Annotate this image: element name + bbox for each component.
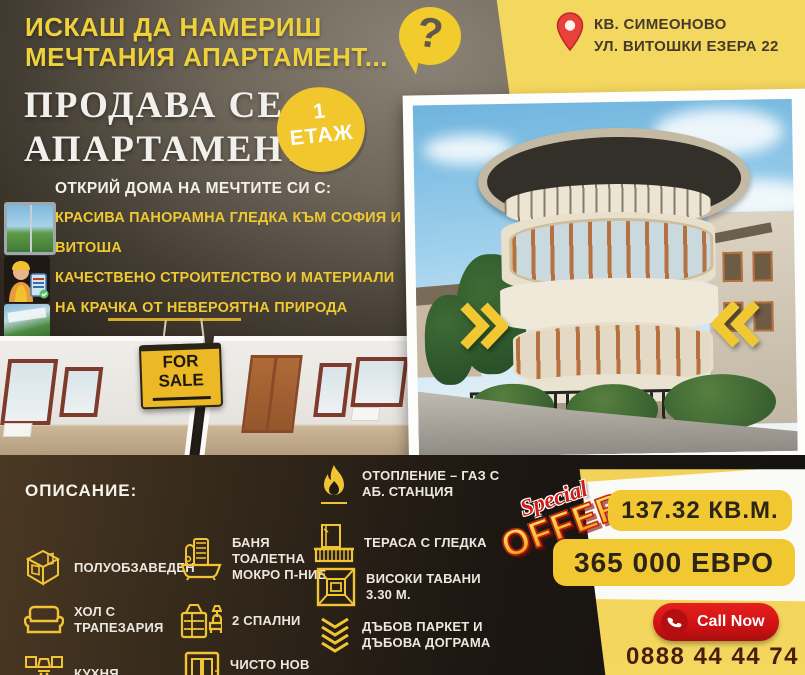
real-estate-flyer: ИСКАШ ДА НАМЕРИШ МЕЧТАНИЯ АПАРТАМЕНТ... …	[0, 0, 805, 675]
divider-line	[108, 318, 241, 321]
bathroom-icon	[180, 537, 222, 581]
features-list: КРАСИВА ПАНОРАМНА ГЛЕДКА КЪМ СОФИЯ И ВИТ…	[55, 203, 443, 323]
chevrons-left-icon	[712, 300, 762, 348]
for-sale-sign: FOR SALE	[139, 343, 223, 410]
for-sale-line1: FOR	[162, 351, 199, 371]
address-line1: КВ. СИМЕОНОВО	[594, 16, 727, 33]
headline-line2: МЕЧТАНИЯ АПАРТАМЕНТ...	[25, 42, 388, 72]
building-photo	[403, 88, 805, 487]
description-item: КУХНЯ	[24, 655, 119, 675]
address-block: КВ. СИМЕОНОВО УЛ. ВИТОШКИ ЕЗЕРА 22	[594, 14, 779, 58]
question-mark: ?	[396, 5, 464, 61]
location-pin-icon	[556, 12, 584, 52]
features-heading: ОТКРИЙ ДОМА НА МЕЧТИТЕ СИ С:	[55, 180, 331, 198]
chevrons-right-icon	[458, 302, 508, 350]
description-item: ОТОПЛЕНИЕ – ГАЗ С АБ. СТАНЦИЯ	[316, 463, 502, 505]
ceiling-icon	[316, 567, 356, 607]
phone-number[interactable]: 0888 44 44 74	[626, 643, 799, 671]
bottom-section: ОПИСАНИЕ: ПОЛУОБЗАВЕДЕН ХОЛ С ТРАПЕЗАРИЯ	[0, 455, 805, 675]
description-item: ВИСОКИ ТАВАНИ 3.30 М.	[316, 567, 486, 607]
price-badge: 365 000 ЕВРО	[553, 539, 795, 586]
window-view-image	[4, 202, 56, 255]
description-label: КУХНЯ	[74, 666, 119, 675]
sale-title-line1: ПРОДАВА СЕ	[24, 84, 284, 127]
description-item: 2 СПАЛНИ	[180, 601, 301, 641]
description-item: ПОЛУОБЗАВЕДЕН	[22, 547, 194, 589]
description-item: ХОЛ С ТРАПЕЗАРИЯ	[24, 603, 174, 637]
construction-worker-image	[4, 256, 50, 303]
headline: ИСКАШ ДА НАМЕРИШ МЕЧТАНИЯ АПАРТАМЕНТ...	[25, 12, 405, 72]
feature-thumbnails	[4, 202, 52, 352]
floorplan-icon	[22, 547, 64, 589]
kitchen-icon	[24, 655, 64, 675]
headline-line1: ИСКАШ ДА НАМЕРИШ	[25, 12, 322, 42]
question-bubble-icon: ?	[399, 7, 461, 65]
sale-title-line2: АПАРТАМЕНТ	[24, 128, 311, 171]
bedroom-icon	[180, 601, 222, 641]
description-label: ПОЛУОБЗАВЕДЕН	[74, 560, 194, 576]
description-label: ХОЛ С ТРАПЕЗАРИЯ	[74, 604, 174, 636]
description-label: ТЕРАСА С ГЛЕДКА	[364, 535, 487, 551]
for-sale-line2: SALE	[158, 370, 204, 391]
description-label: ОТОПЛЕНИЕ – ГАЗ С АБ. СТАНЦИЯ	[362, 468, 502, 500]
elevator-icon	[184, 651, 220, 675]
address-line2: УЛ. ВИТОШКИ ЕЗЕРА 22	[594, 38, 779, 55]
flame-icon	[316, 463, 352, 505]
sofa-icon	[24, 603, 64, 637]
description-item: ЧИСТО НОВ АСАНСЬОР	[184, 651, 330, 675]
description-item: ДЪБОВ ПАРКЕТ И ДЪБОВА ДОГРАМА	[318, 615, 512, 655]
description-label: ЧИСТО НОВ АСАНСЬОР	[230, 657, 330, 675]
area-badge: 137.32 КВ.М.	[608, 490, 792, 531]
phone-icon	[661, 609, 688, 636]
description-item: ТЕРАСА С ГЛЕДКА	[314, 523, 487, 563]
description-heading: ОПИСАНИЕ:	[25, 481, 137, 501]
call-now-button[interactable]: Call Now	[653, 603, 779, 641]
feature-item: КРАСИВА ПАНОРАМНА ГЛЕДКА КЪМ СОФИЯ И ВИТ…	[55, 203, 443, 263]
description-label: ВИСОКИ ТАВАНИ 3.30 М.	[366, 571, 486, 603]
balcony-icon	[314, 523, 354, 563]
feature-item: КАЧЕСТВЕНО СТРОИТЕЛСТВО И МАТЕРИАЛИ	[55, 263, 443, 293]
description-label: 2 СПАЛНИ	[232, 613, 301, 629]
parquet-icon	[318, 615, 352, 655]
call-now-label: Call Now	[697, 613, 765, 631]
description-label: ДЪБОВ ПАРКЕТ И ДЪБОВА ДОГРАМА	[362, 619, 512, 651]
